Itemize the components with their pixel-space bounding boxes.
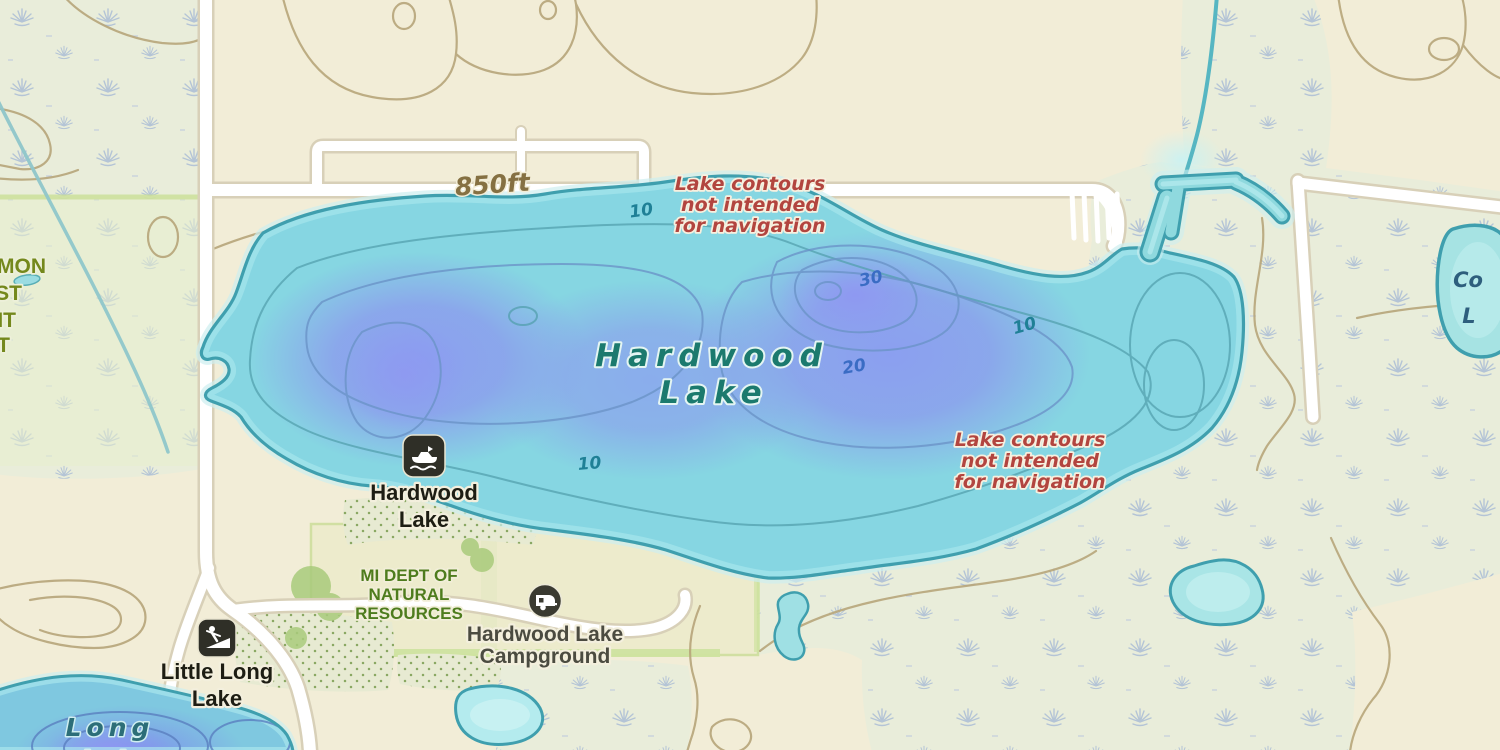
partial-text-4: T <box>0 334 10 357</box>
water-access-label-line2: Lake <box>192 686 242 711</box>
warning-line3: for navigation <box>674 215 825 237</box>
warning-line1: Lake contours <box>955 429 1106 451</box>
boat-launch-label-line2: Lake <box>399 507 449 532</box>
land-manager-label: MI DEPT OF NATURAL RESOURCES <box>355 566 463 623</box>
navigation-warning-north: Lake contours not intended for navigatio… <box>674 173 825 237</box>
boat-launch-icon[interactable] <box>403 435 445 477</box>
hardwood-lake-name-line1: Hardwood <box>595 338 829 374</box>
right-lake-partial-line2: L <box>1462 304 1475 328</box>
depth-label-10-south: 10 <box>577 453 602 475</box>
right-lake-partial-line1: Co <box>1453 268 1483 292</box>
carry-in-access-icon[interactable] <box>198 619 236 657</box>
land-manager-line2: NATURAL <box>369 585 450 604</box>
depth-label-20: 20 <box>841 355 868 379</box>
partial-text-2: ST <box>0 282 22 305</box>
campground-label-line1: Hardwood Lake <box>467 623 623 646</box>
partial-text-3: IT <box>0 309 16 332</box>
boat-launch-label-line1: Hardwood <box>370 480 478 505</box>
campground-label-line2: Campground <box>480 645 611 668</box>
elevation-contour-label: 850ft <box>454 167 532 201</box>
long-lake-name-line1: Long <box>66 713 155 742</box>
partial-text-1: MMON <box>0 255 46 278</box>
warning-line2: not intended <box>961 450 1099 472</box>
water-access-label-line1: Little Long <box>161 659 273 684</box>
land-manager-line1: MI DEPT OF <box>360 566 457 585</box>
land-manager-line3: RESOURCES <box>355 604 463 623</box>
warning-line1: Lake contours <box>675 173 826 195</box>
navigation-warning-south: Lake contours not intended for navigatio… <box>954 429 1105 493</box>
hardwood-lake-name-line2: Lake <box>659 375 768 411</box>
campground-icon[interactable] <box>529 585 562 618</box>
depth-label-10-north: 10 <box>628 199 654 222</box>
long-lake-name-line2: lake <box>81 746 159 750</box>
warning-line2: not intended <box>681 194 819 216</box>
state-land-parcel <box>0 196 207 466</box>
map-canvas[interactable]: Hardwood Lake Long lake Co L 10 30 10 20… <box>0 0 1500 750</box>
warning-line3: for navigation <box>954 471 1105 493</box>
